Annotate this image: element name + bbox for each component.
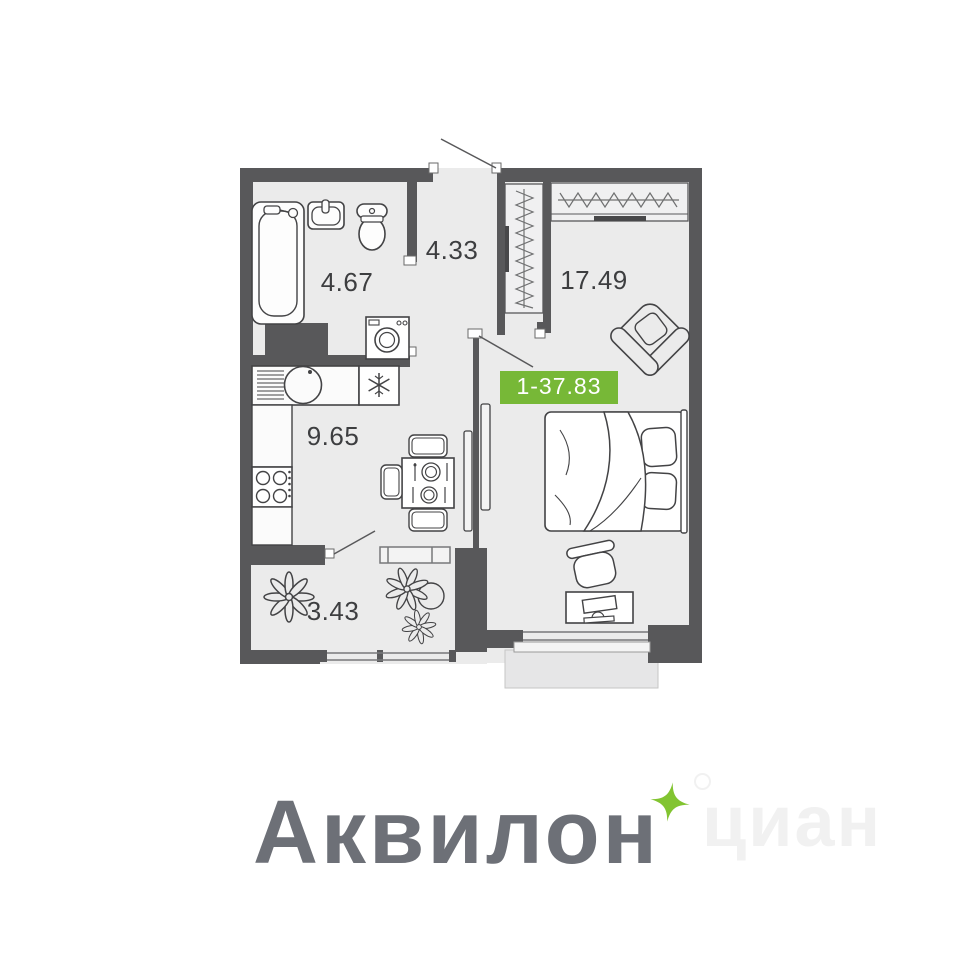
tv-panel-kitchen-icon — [464, 431, 472, 531]
kitchen-window — [380, 547, 450, 563]
tv-panel-bedroom-icon — [481, 404, 490, 510]
living-room-area-label: 17.49 — [560, 265, 628, 295]
sparkle-icon — [645, 777, 695, 827]
wardrobe-horizontal-icon — [551, 183, 688, 221]
dining-chair-top — [409, 435, 447, 457]
washing-machine-icon — [366, 317, 409, 359]
bathroom-sink-icon — [308, 200, 344, 229]
counter-cabinet — [252, 405, 292, 467]
floor-plan-page: 4.67 4.33 17.49 9.65 3.43 1-37.83 циан А… — [0, 0, 960, 960]
dining-table-icon — [402, 458, 454, 508]
kitchen-area-label: 9.65 — [307, 421, 360, 451]
unit-badge-label: 1-37.83 — [516, 373, 601, 399]
entrance-door-swing — [441, 139, 496, 168]
dining-chair-left — [381, 465, 402, 499]
fridge-icon — [359, 366, 399, 405]
wardrobe-vertical-icon — [505, 184, 543, 313]
developer-logo: Аквилон — [253, 788, 660, 878]
duct-block — [265, 323, 328, 356]
lower-cabinet — [252, 507, 292, 545]
cian-watermark: циан — [702, 786, 882, 858]
sparkle-star — [648, 780, 693, 825]
unit-badge: 1-37.83 — [500, 371, 618, 404]
bathtub-icon — [252, 202, 304, 324]
bed-icon — [545, 410, 687, 533]
balcony-area-label: 3.43 — [307, 596, 360, 626]
bathroom-area-label: 4.67 — [321, 267, 374, 297]
dining-chair-bottom — [409, 509, 447, 531]
desk-icon — [566, 592, 633, 623]
toilet-icon — [357, 204, 387, 250]
kitchen-counter-sink-icon — [252, 366, 359, 405]
stove-icon — [252, 467, 292, 507]
hallway-area-label: 4.33 — [426, 235, 479, 265]
